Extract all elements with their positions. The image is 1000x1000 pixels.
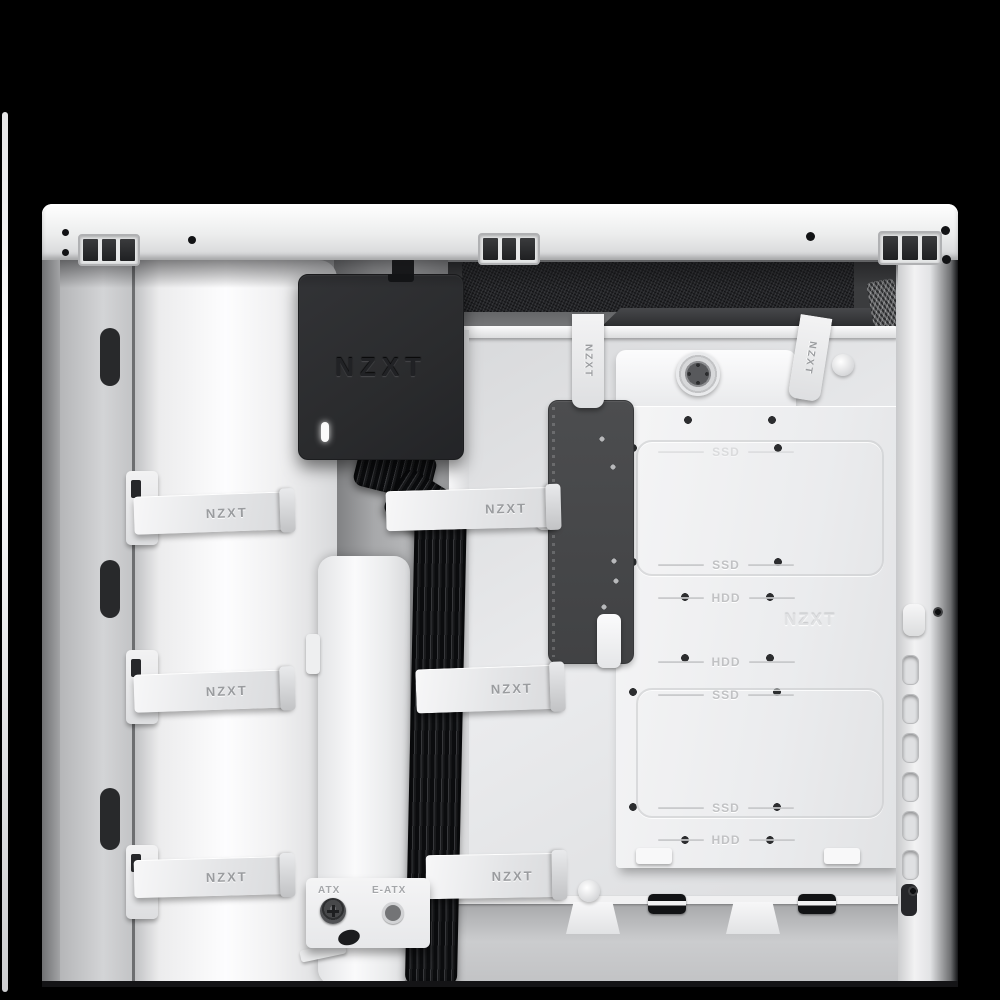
screw [941,226,950,235]
cable-clip [597,614,621,668]
tie-slot [902,850,919,880]
pc-case-interior-photo: SSD SSD HDD HDD SSD SSD [0,0,1000,1000]
rubber-bumper [336,927,361,947]
tie-slot [902,811,919,841]
top-fan-mesh [462,262,854,312]
strap-brand-label: NZXT [492,868,534,884]
vent-slot-group [878,231,942,265]
screw [62,229,69,236]
velcro-strap: NZXT [133,491,292,534]
case-floor [448,902,898,987]
label-line [749,597,795,599]
vent-slot [902,236,917,260]
left-frame-strip [60,258,132,984]
ssd-mount-outline [636,688,884,818]
door-hook [306,634,320,674]
tie-slot [902,733,919,763]
screw [933,607,943,617]
eatx-label: E-ATX [372,885,406,896]
cage-embossed-logo: NZXT [784,610,836,630]
velcro-strap: NZXT [426,853,565,899]
case-bottom-edge [42,981,958,987]
drive-label: HDD [712,833,741,847]
drive-label: SSD [712,558,740,572]
label-line [658,839,704,841]
cable-cutout [100,560,120,618]
screw [942,255,951,264]
velcro-strap-vertical: NZXT [572,314,604,408]
vent-slot [483,238,498,260]
label-line [658,451,704,453]
drive-label: HDD [712,591,741,605]
vent-slot-group [478,233,540,265]
front-panel-edge-highlight [2,112,8,992]
zip-tie-hook [903,604,925,636]
floor-tab [726,902,780,934]
drive-label-row: SSD [616,687,836,703]
label-line [658,564,704,566]
standoff-peg [578,880,600,902]
drive-label: SSD [712,688,740,702]
atx-label: ATX [318,885,340,896]
strap-brand-label: NZXT [485,500,527,516]
screw [62,249,69,256]
drive-label: HDD [712,655,741,669]
drive-cage-plate: SSD SSD HDD HDD SSD SSD [616,406,902,868]
vent-slot [502,238,517,260]
velcro-strap: NZXT [386,487,559,531]
strap-brand-label: NZXT [206,869,248,885]
controller-notch [388,274,414,282]
cage-tab [824,848,860,864]
strap-brand-label: NZXT [206,504,248,520]
label-line [658,661,704,663]
thumbscrew [676,352,720,396]
phillips-screw [320,898,346,924]
vent-slot [83,239,98,261]
label-line [749,661,795,663]
radiator-ledge [600,308,898,328]
drive-label-row: HDD [616,590,836,606]
rubber-grommet [798,894,836,914]
ssd-mount-outline [636,440,884,576]
vent-slot [922,236,937,260]
velcro-strap: NZXT [134,856,293,898]
drive-label: SSD [712,445,740,459]
drive-label-row: HDD [616,654,836,670]
drive-label: SSD [712,801,740,815]
strap-brand-label: NZXT [491,680,533,696]
controller-logo: NZXT [335,352,427,383]
label-line [748,807,794,809]
drive-label-row: SSD [616,557,836,573]
screw [188,236,196,244]
strap-brand-label: NZXT [206,682,248,698]
standoff-bracket: ATX E-ATX [306,878,430,948]
floor-tab [566,902,620,934]
drive-label-row: SSD [616,800,836,816]
strap-brand-label: NZXT [802,340,818,375]
drive-label-row: SSD [616,444,836,460]
cable-cutout [100,788,120,850]
label-line [658,694,704,696]
vent-slot [102,239,117,261]
cage-tab [636,848,672,864]
rear-ssd-mount-panel [548,400,634,664]
screw [906,884,920,898]
vent-slot [120,239,135,261]
screw [806,232,815,241]
cable-cutout [100,328,120,386]
rubber-grommet [648,894,686,914]
label-line [748,451,794,453]
standoff-peg [832,354,854,376]
tie-slot [902,694,919,724]
anchor-slot [131,480,141,498]
velcro-strap: NZXT [133,669,292,712]
vent-slot-group [78,234,140,266]
tie-slot [902,655,919,685]
case-left-edge [42,258,60,984]
label-line [658,597,704,599]
velcro-strap: NZXT [415,664,562,713]
controller-led [321,422,329,442]
strap-brand-label: NZXT [583,344,594,378]
label-line [748,694,794,696]
vent-slot [883,236,898,260]
label-line [658,807,704,809]
vent-slot [520,238,535,260]
eatx-standoff-hole [382,902,404,924]
tie-slot [902,772,919,802]
label-line [748,564,794,566]
drive-label-row: HDD [616,832,836,848]
label-line [749,839,795,841]
